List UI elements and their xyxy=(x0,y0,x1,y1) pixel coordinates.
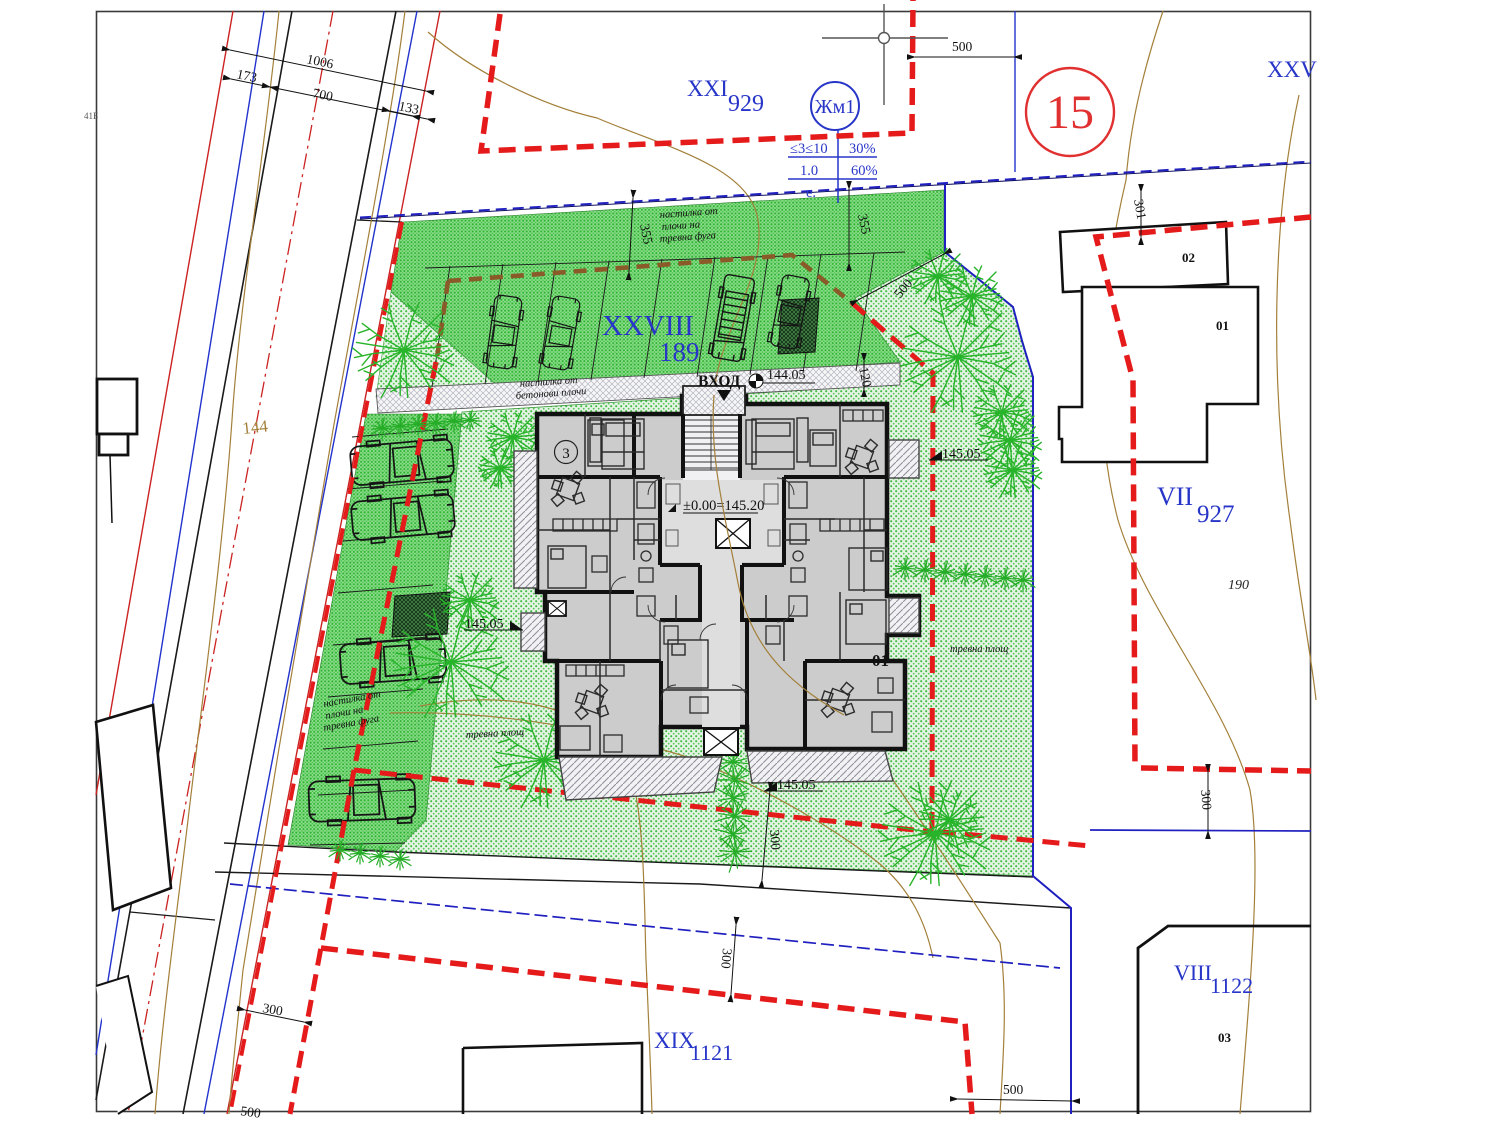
svg-text:03: 03 xyxy=(1218,1030,1232,1045)
svg-text:01: 01 xyxy=(1216,318,1229,333)
svg-text:1121: 1121 xyxy=(690,1040,733,1065)
svg-text:144.05: 144.05 xyxy=(767,368,806,383)
svg-text:XXV: XXV xyxy=(1267,57,1317,82)
svg-text:500: 500 xyxy=(1003,1082,1024,1097)
svg-text:ВХОД: ВХОД xyxy=(698,373,741,390)
svg-text:60%: 60% xyxy=(851,163,878,179)
svg-text:500: 500 xyxy=(240,1103,262,1121)
svg-text:145.05: 145.05 xyxy=(465,617,504,632)
svg-text:300: 300 xyxy=(718,948,735,970)
svg-text:е.: е. xyxy=(806,185,816,201)
svg-text:≤3≤10: ≤3≤10 xyxy=(790,141,828,157)
svg-text:300: 300 xyxy=(767,829,784,851)
svg-text:Жм1: Жм1 xyxy=(815,96,856,118)
svg-text:927: 927 xyxy=(1197,501,1235,528)
svg-text:01: 01 xyxy=(872,651,889,670)
svg-text:тревна площ: тревна площ xyxy=(950,644,1008,655)
svg-text:15: 15 xyxy=(1046,86,1094,139)
svg-text:189: 189 xyxy=(659,337,700,367)
svg-text:XXI: XXI xyxy=(687,76,728,101)
svg-text:144: 144 xyxy=(241,416,269,438)
svg-text:3: 3 xyxy=(562,446,570,462)
svg-text:VII: VII xyxy=(1157,482,1193,511)
svg-text:1.0: 1.0 xyxy=(800,163,818,179)
svg-text:145.05: 145.05 xyxy=(777,778,816,793)
svg-text:41Б: 41Б xyxy=(84,111,98,121)
svg-text:190: 190 xyxy=(1228,578,1249,593)
svg-text:500: 500 xyxy=(952,39,973,54)
svg-text:145.05: 145.05 xyxy=(942,447,981,462)
svg-text:1122: 1122 xyxy=(1210,973,1253,998)
svg-text:30%: 30% xyxy=(849,141,876,157)
svg-text:VIII: VIII xyxy=(1174,960,1212,985)
svg-text:300: 300 xyxy=(1198,789,1215,811)
svg-text:929: 929 xyxy=(728,91,764,117)
svg-text:02: 02 xyxy=(1182,250,1195,265)
